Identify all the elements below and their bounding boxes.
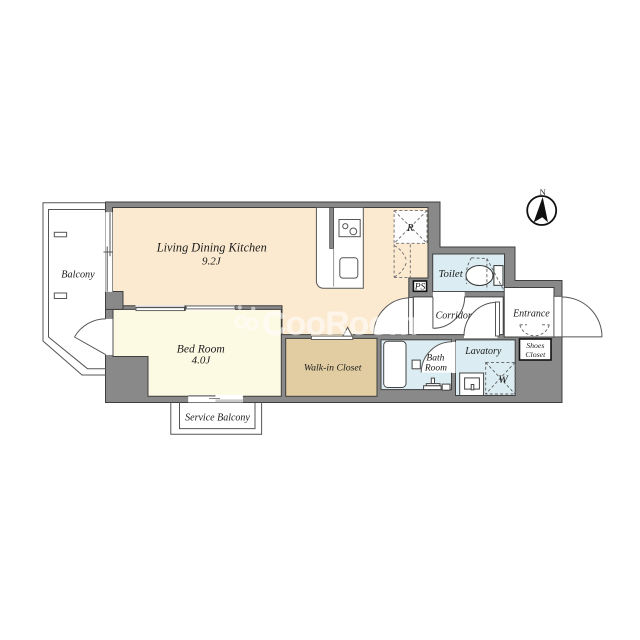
svg-text:Bath: Bath <box>426 354 444 364</box>
svg-text:CooRoom: CooRoom <box>262 305 417 343</box>
svg-text:Corridor: Corridor <box>436 310 472 321</box>
svg-text:Living Dining Kitchen: Living Dining Kitchen <box>156 241 267 255</box>
svg-text:4.0J: 4.0J <box>192 354 212 366</box>
svg-text:Walk-in Closet: Walk-in Closet <box>304 362 362 373</box>
svg-text:PS: PS <box>414 283 426 293</box>
svg-text:Balcony: Balcony <box>61 270 95 281</box>
svg-text:Room: Room <box>424 363 447 373</box>
svg-text:Service Balcony: Service Balcony <box>185 413 250 424</box>
svg-text:Closet: Closet <box>525 350 546 359</box>
svg-text:9.2J: 9.2J <box>202 256 222 268</box>
svg-text:Lavatory: Lavatory <box>464 346 502 357</box>
svg-text:Entrance: Entrance <box>512 309 550 320</box>
svg-text:N: N <box>540 187 546 197</box>
svg-text:Shoes: Shoes <box>526 341 544 350</box>
svg-text:R: R <box>406 223 414 234</box>
svg-text:Toilet: Toilet <box>438 268 463 280</box>
svg-text:W: W <box>498 374 509 386</box>
